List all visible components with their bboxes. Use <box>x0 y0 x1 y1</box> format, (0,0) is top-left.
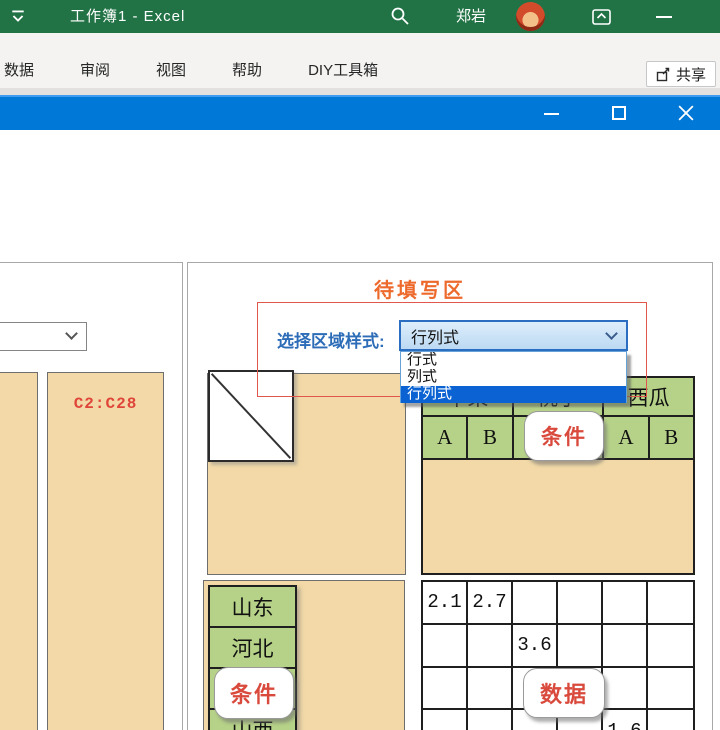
chevron-down-icon <box>65 327 78 340</box>
grid-cell <box>423 710 468 730</box>
grid-cell <box>648 625 693 668</box>
quick-access-toolbar-icon[interactable] <box>10 8 26 24</box>
data-badge: 数据 <box>523 668 605 718</box>
ribbon-tab-bar: 数据 审阅 视图 帮助 DIY工具箱 共享 <box>0 33 720 88</box>
area-style-combobox[interactable]: 行列式 <box>399 320 628 351</box>
avatar[interactable] <box>516 2 545 31</box>
combobox-value: 行列式 <box>411 324 459 348</box>
share-icon <box>656 67 671 82</box>
share-label: 共享 <box>676 64 706 85</box>
header-cell: A <box>604 417 649 458</box>
close-icon <box>678 105 694 121</box>
grid-cell: 3.6 <box>513 625 558 668</box>
dialog-maximize-button[interactable] <box>612 106 626 120</box>
tab-review[interactable]: 审阅 <box>80 59 110 80</box>
condition-cell: 山东 <box>208 585 297 628</box>
tab-help[interactable]: 帮助 <box>232 59 262 80</box>
option-column-style[interactable]: 列式 <box>401 369 626 386</box>
ribbon-display-options-icon[interactable] <box>592 9 611 30</box>
grid-cell <box>648 710 693 730</box>
tab-diy-toolbox[interactable]: DIY工具箱 <box>308 59 378 80</box>
collapse-chevron-icon <box>10 8 26 24</box>
excel-titlebar: 工作簿1 - Excel 郑岩 <box>0 0 720 33</box>
grid-cell: 2.1 <box>423 582 468 625</box>
section-title: 待填写区 <box>300 274 540 303</box>
ribbon-tabs: 数据 审阅 视图 帮助 DIY工具箱 <box>4 59 378 80</box>
chevron-down-icon <box>605 327 618 340</box>
grid-cell <box>603 582 648 625</box>
option-row-style[interactable]: 行式 <box>401 352 626 369</box>
grid-cell <box>468 668 513 711</box>
dialog-close-button[interactable] <box>678 105 694 126</box>
grid-cell <box>603 625 648 668</box>
left-data-panel: C2:C28 <box>47 372 164 730</box>
screen: 工作簿1 - Excel 郑岩 数据 审阅 视图 帮助 DIY工具箱 <box>0 0 720 730</box>
grid-cell: 2.7 <box>468 582 513 625</box>
grid-cell <box>513 582 558 625</box>
grid-cell <box>648 668 693 711</box>
left-style-combobox[interactable] <box>0 322 87 351</box>
grid-cell <box>648 582 693 625</box>
condition-badge: 条件 <box>214 667 294 719</box>
grid-cell <box>603 668 648 711</box>
option-row-column-style[interactable]: 行列式 <box>401 386 626 403</box>
dialog-minimize-button[interactable] <box>544 113 559 115</box>
style-label: 选择区域样式: <box>277 327 385 352</box>
condition-badge: 条件 <box>524 411 604 461</box>
worksheet-strip <box>0 88 720 97</box>
grid-cell <box>558 582 603 625</box>
header-cell: B <box>650 417 693 458</box>
grid-cell <box>558 625 603 668</box>
condition-cell: 河北 <box>208 626 297 669</box>
search-icon[interactable] <box>390 6 410 31</box>
excel-minimize-button[interactable] <box>656 16 672 18</box>
header-preview-panel: 苹果 桃子 西瓜 A B A B <box>421 376 695 575</box>
range-reference: C2:C28 <box>48 395 163 413</box>
header-cell: A <box>423 417 468 458</box>
grid-cell: 1.6 <box>603 710 648 730</box>
area-style-dropdown-list: 行式 列式 行列式 <box>400 351 627 403</box>
tab-view[interactable]: 视图 <box>156 59 186 80</box>
tab-data[interactable]: 数据 <box>4 59 34 80</box>
workbook-title: 工作簿1 - Excel <box>70 0 185 33</box>
share-button[interactable]: 共享 <box>646 61 716 87</box>
grid-cell <box>423 625 468 668</box>
grid-cell <box>423 668 468 711</box>
account-name[interactable]: 郑岩 <box>456 0 486 33</box>
left-condition-panel <box>0 372 38 730</box>
dialog-body: C2:C28 待填写区 选择区域样式: 行列式 行式 列式 行列式 苹果 桃子 <box>0 130 720 730</box>
grid-cell <box>468 710 513 730</box>
grid-cell <box>468 625 513 668</box>
header-cell: B <box>468 417 513 458</box>
